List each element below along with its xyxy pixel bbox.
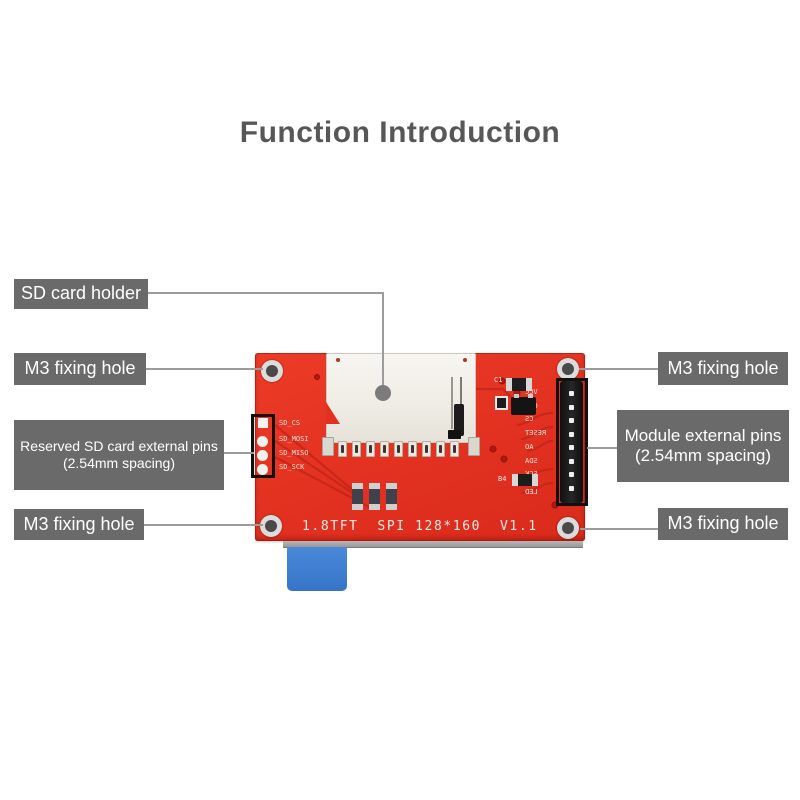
label-text-line2: (2.54mm spacing) (635, 446, 771, 466)
ribbon-cable-tab (287, 547, 347, 591)
header-pin-label-reset: RESET (525, 429, 555, 437)
smd-diode (495, 396, 508, 410)
callout-line-module-pins (587, 447, 617, 449)
label-module-pins: Module external pins (2.54mm spacing) (617, 410, 789, 482)
component-label-b4: B4 (498, 475, 506, 483)
m3-hole-bottom-left (260, 515, 282, 537)
callout-line-sd-holder-drop (382, 292, 384, 386)
header-pin-label-led: LED (525, 488, 555, 496)
header-pin-label-ao: AO (525, 443, 555, 451)
callout-line-sd-holder (148, 292, 383, 294)
header-pin (569, 432, 574, 437)
header-pin (569, 391, 574, 396)
callout-line-m3-left-bottom (144, 524, 263, 526)
callout-line-m3-right-top (579, 368, 658, 370)
label-text: M3 fixing hole (24, 358, 135, 380)
header-pin-label-sda: SDA (525, 457, 555, 465)
pcb-board: SD_CS SD_MOSI SD_MISO SD_SCK VCC GND CS … (255, 353, 585, 541)
header-pin (569, 405, 574, 410)
smd-capacitor-c1 (506, 378, 532, 391)
header-pin (569, 418, 574, 423)
sd-pad-sck (257, 464, 268, 475)
callout-line-m3-right-bottom (580, 528, 658, 530)
sd-pin-label: SD_MOSI (279, 435, 309, 443)
holder-solder-tab-right (468, 437, 480, 456)
header-pin (569, 445, 574, 450)
holder-solder-tab-left (322, 437, 334, 456)
label-text: M3 fixing hole (23, 514, 134, 536)
m3-hole-top-right (557, 358, 579, 380)
holder-rivet (463, 358, 467, 362)
sd-pin-label: SD_CS (279, 419, 300, 427)
smd-resistor (352, 483, 363, 510)
smd-resistor (369, 483, 380, 510)
sd-pin-label: SD_SCK (279, 463, 304, 471)
card-lock-lever-foot (448, 430, 461, 439)
callout-line-reserved-pins (224, 452, 254, 454)
label-sd-card-holder: SD card holder (14, 279, 148, 309)
m3-hole-top-left (261, 360, 283, 382)
label-m3-right-bottom: M3 fixing hole (658, 508, 788, 540)
sd-holder-contact-pins (338, 441, 466, 458)
label-text-line1: Module external pins (625, 426, 782, 446)
m3-hole-bottom-right (557, 517, 579, 539)
label-text: M3 fixing hole (667, 358, 778, 380)
sd-pad-mosi (257, 436, 268, 447)
holder-rivet (336, 358, 340, 362)
module-pin-header (560, 381, 583, 503)
header-pin (569, 472, 574, 477)
label-text-line1: Reserved SD card external pins (20, 438, 218, 455)
sd-card-holder (326, 353, 476, 443)
smd-resistor (386, 483, 397, 510)
header-pin-label-cs: CS (525, 415, 555, 423)
sd-pin-label: SD_MISO (279, 449, 309, 457)
smd-resistor-b4 (512, 474, 538, 486)
label-text: M3 fixing hole (667, 513, 778, 535)
component-label-c1: C1 (494, 376, 502, 384)
sd-pad-cs (258, 418, 268, 428)
label-text-line2: (2.54mm spacing) (63, 455, 175, 472)
silkscreen-text: 1.8TFT SPI 128*160 V1.1 (302, 519, 538, 534)
sd-pad-miso (257, 450, 268, 461)
holder-notch (326, 402, 340, 424)
callout-line-m3-left-top (146, 368, 263, 370)
label-m3-right-top: M3 fixing hole (658, 352, 788, 385)
callout-dot-sd-holder (375, 385, 391, 401)
annotated-module-diagram: Function Introduction (0, 0, 800, 800)
card-lock-slot (451, 377, 453, 429)
header-pin (569, 459, 574, 464)
sot23-transistor (511, 397, 536, 415)
header-pin (569, 486, 574, 491)
label-reserved-sd-pins: Reserved SD card external pins (2.54mm s… (14, 420, 224, 490)
label-m3-left-bottom: M3 fixing hole (14, 509, 144, 540)
label-text: SD card holder (21, 283, 141, 305)
label-m3-left-top: M3 fixing hole (14, 353, 146, 385)
page-title: Function Introduction (0, 116, 800, 150)
